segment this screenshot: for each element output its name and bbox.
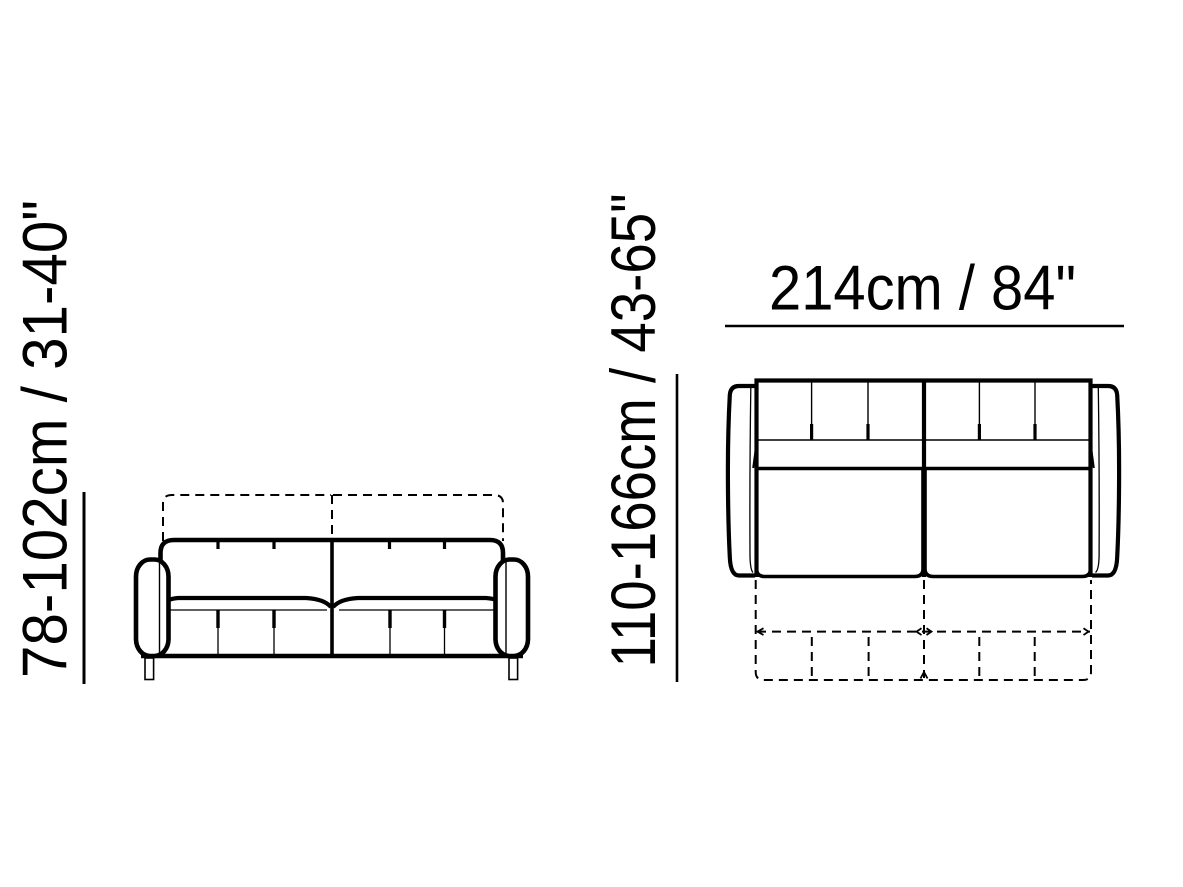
svg-text:110-166cm / 43-65": 110-166cm / 43-65" [599, 194, 669, 668]
svg-text:78-102cm / 31-40": 78-102cm / 31-40" [11, 200, 81, 678]
svg-text:214cm / 84": 214cm / 84" [769, 254, 1076, 324]
